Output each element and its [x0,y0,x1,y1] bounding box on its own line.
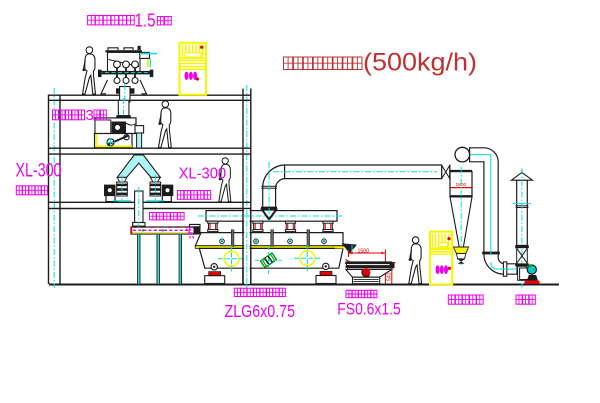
svg-text:XL-300: XL-300 [179,165,227,182]
svg-text:1.5: 1.5 [135,9,156,30]
svg-text:ZLG6x0.75: ZLG6x0.75 [225,301,296,321]
svg-text:1500: 1500 [358,249,370,255]
svg-text:XL-300: XL-300 [16,160,62,182]
svg-text:3: 3 [86,107,94,124]
svg-text:FS0.6x1.5: FS0.6x1.5 [337,300,400,319]
svg-text:(500kg/h): (500kg/h) [363,49,477,77]
svg-text:540: 540 [387,272,393,281]
